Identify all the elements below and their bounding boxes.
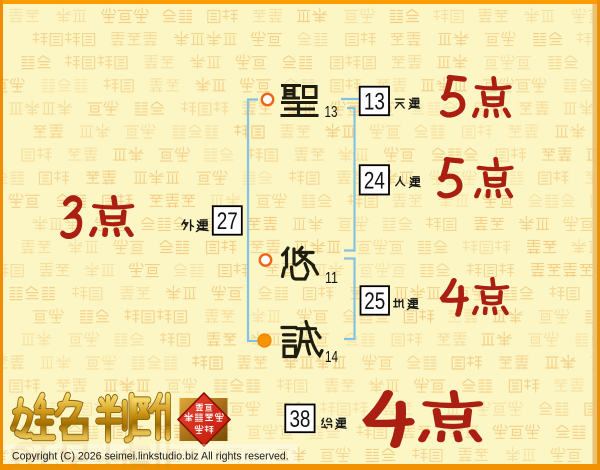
- svg-text:24: 24: [364, 167, 385, 194]
- svg-text:38: 38: [289, 406, 310, 433]
- svg-text:27: 27: [217, 208, 238, 235]
- svg-text:11: 11: [325, 270, 338, 287]
- svg-text:13: 13: [364, 88, 385, 115]
- svg-text:Copyright (C) 2026 seimei.link: Copyright (C) 2026 seimei.linkstudio.biz…: [12, 451, 289, 463]
- svg-text:13: 13: [325, 104, 338, 121]
- svg-text:25: 25: [364, 288, 385, 315]
- svg-text:14: 14: [325, 349, 338, 366]
